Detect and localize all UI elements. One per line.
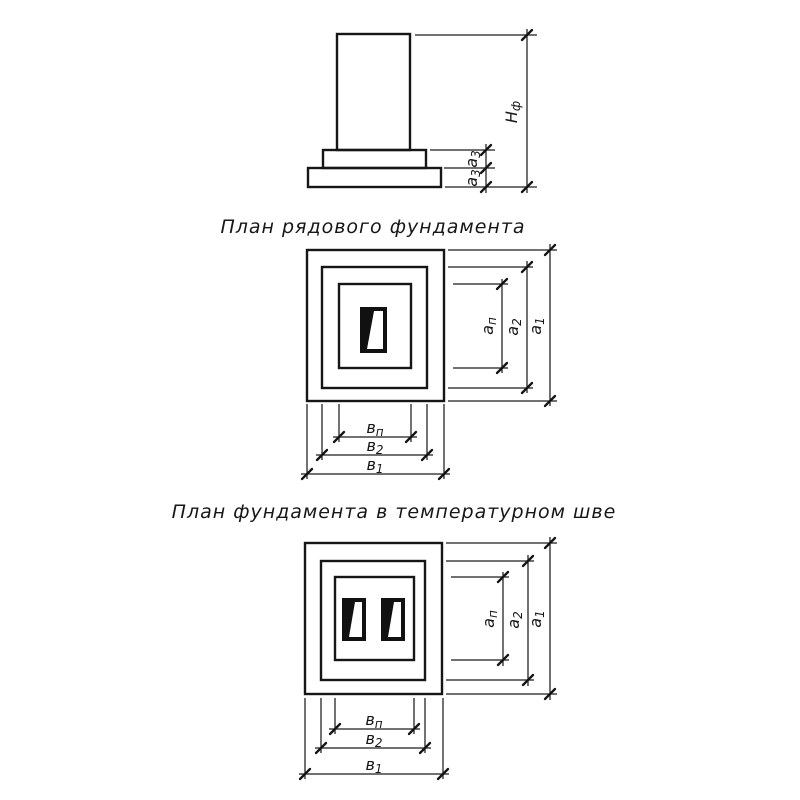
column-section-left xyxy=(342,598,366,641)
foundation-step-upper xyxy=(323,150,426,168)
drawing-sheet: а3 а3 Нф План рядового фундамента xyxy=(0,0,800,800)
foundation-drawing: а3 а3 Нф План рядового фундамента xyxy=(0,0,800,800)
footing-middle-step xyxy=(321,561,425,680)
dim-label-bn: вп xyxy=(365,710,382,731)
title-joint-foundation: План фундамента в температурном шве xyxy=(172,501,617,523)
dim-label-hf: Нф xyxy=(502,101,523,123)
column-shaft xyxy=(337,34,410,150)
dim-label-a1: а1 xyxy=(526,317,547,334)
plan-joint-foundation: ап а2 а1 вп в2 в1 xyxy=(299,537,557,779)
dim-label-b2: в2 xyxy=(365,729,382,750)
title-row-foundation: План рядового фундамента xyxy=(220,216,525,238)
plan1-shapes xyxy=(307,250,444,401)
plan1-right-dimensions: ап а2 а1 xyxy=(448,244,557,406)
plan1-bottom-dimensions: вп в2 в1 xyxy=(301,404,450,479)
dim-label-b1: в1 xyxy=(366,455,383,476)
dim-label-a3-lower: а3 xyxy=(462,169,483,186)
dim-label-b2: в2 xyxy=(366,436,383,457)
dim-label-a3-upper: а3 xyxy=(462,150,483,167)
footing-outer-step xyxy=(305,543,442,694)
elevation-shapes xyxy=(308,34,441,187)
elevation-view: а3 а3 Нф xyxy=(308,29,537,193)
column-section xyxy=(360,307,387,353)
plan-row-foundation: ап а2 а1 вп в2 в1 xyxy=(301,244,557,479)
dim-label-a2: а2 xyxy=(503,318,524,335)
plan2-bottom-dimensions: вп в2 в1 xyxy=(299,698,449,779)
dim-label-an: ап xyxy=(478,317,499,335)
plan2-right-dimensions: ап а2 а1 xyxy=(446,537,557,700)
dim-label-b1: в1 xyxy=(365,755,382,776)
dim-label-a2: а2 xyxy=(504,611,525,628)
plan2-shapes xyxy=(305,543,442,694)
column-section-right xyxy=(381,598,405,641)
foundation-step-lower xyxy=(308,168,441,187)
dim-label-an: ап xyxy=(479,610,500,628)
dim-label-a1: а1 xyxy=(526,610,547,627)
